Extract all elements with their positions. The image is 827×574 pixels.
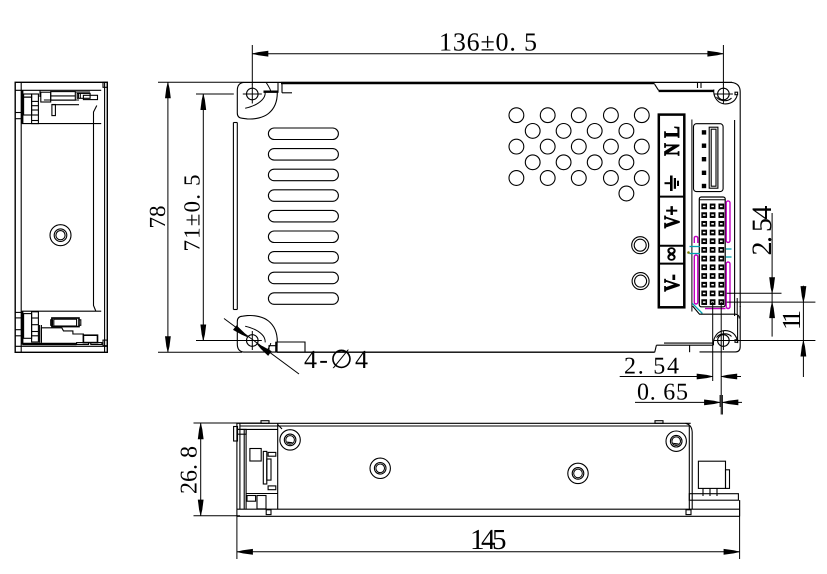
svg-text:V+: V+ [659, 206, 684, 229]
svg-text:0. 65: 0. 65 [637, 380, 688, 406]
svg-text:L: L [659, 126, 684, 138]
svg-text:11: 11 [777, 310, 806, 330]
svg-text:N: N [659, 143, 684, 156]
svg-text:4-∅4: 4-∅4 [304, 345, 368, 374]
svg-text:∞: ∞ [661, 247, 682, 261]
svg-text:V-: V- [659, 274, 684, 291]
svg-text:145: 145 [470, 524, 507, 556]
svg-text:136±0. 5: 136±0. 5 [439, 28, 537, 57]
svg-text:26. 8: 26. 8 [177, 446, 203, 494]
svg-text:78: 78 [145, 206, 170, 229]
svg-text:2. 54: 2. 54 [747, 206, 778, 256]
